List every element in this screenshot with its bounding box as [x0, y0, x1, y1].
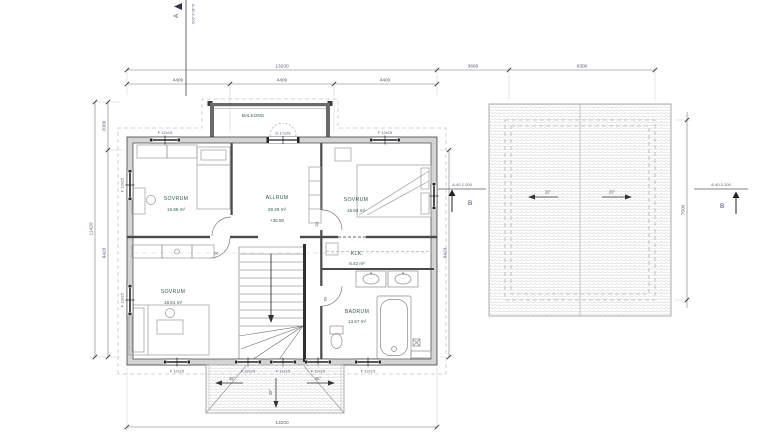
room-closet-area: 6.42 m² [349, 261, 365, 266]
room-bathroom-area: 13.57 m² [348, 319, 367, 324]
cad-floorplan-drawing: A A-40.2-200 13200 4400 4400 4400 3660 6… [0, 0, 768, 444]
room-bedroom-nw-area: 15.88 m² [167, 207, 186, 212]
roof-slope-right: 20° [609, 190, 616, 195]
section-arrow-up-left-icon [449, 190, 456, 197]
bed-bedroom-sw [129, 305, 209, 355]
porch-slope-center: 20° [268, 389, 273, 396]
window-left-upper [126, 170, 135, 200]
dim-top-total: 13200 [275, 64, 289, 70]
dimensions-right: 9420 [440, 148, 453, 359]
section-label-b-right: B [720, 203, 724, 210]
room-bathroom-name: BADRUM [345, 309, 369, 315]
cabinet-bedroom-ne [335, 148, 351, 161]
section-ref-top: A-40.2-200 [191, 4, 196, 25]
dimensions-roof-right: 7500 [675, 112, 691, 308]
label-window-bottom-2: F 12x15 [241, 369, 256, 374]
window-right [430, 183, 439, 209]
sink-right [388, 271, 418, 287]
door-swing-bedroom-nw [212, 217, 231, 236]
exterior-walls [127, 137, 437, 365]
label-window-top-left: F 12x15 [158, 130, 173, 135]
dim-seg1: 4400 [173, 78, 184, 84]
dim-gap-to-roof: 3660 [468, 64, 479, 70]
room-bedroom-ne-area: 15.84 m² [347, 208, 366, 213]
bathtub [377, 296, 411, 359]
dim-roof-depth: 7500 [681, 204, 687, 215]
balcony: BALKONG [208, 101, 333, 137]
porch-slope-left: 45° [229, 376, 236, 381]
section-arrow-icon [174, 3, 182, 10]
section-ref-right: A-40.2-200 [711, 182, 732, 187]
section-marker-right: A-40.2-200 B [694, 182, 748, 214]
section-ref-left: A-40.2-200 [452, 182, 473, 187]
label-window-bottom-1: F 12x15 [170, 369, 185, 374]
label-window-bottom-3: F 12x15 [276, 369, 291, 374]
wardrobes-bedroom-nw [137, 145, 197, 158]
interior-walls [127, 143, 437, 359]
dim-seg2: 4400 [277, 78, 288, 84]
balcony-door [267, 136, 300, 144]
dim-bottom-total: 13200 [275, 420, 289, 426]
door-swing-bedroom-ne [322, 210, 342, 230]
label-door-d8-c: D8 [324, 297, 328, 302]
toilet [330, 326, 343, 349]
windows [126, 136, 439, 367]
dim-left-upper: 2000 [102, 120, 108, 131]
room-bedroom-nw-name: SOVRUM [164, 196, 189, 202]
section-arrow-up-right-icon [733, 192, 740, 199]
room-bedroom-sw-area: 18.81 m² [164, 300, 183, 305]
shelf-livingroom [309, 167, 321, 223]
drawing-svg: A A-40.2-200 13200 4400 4400 4400 3660 6… [0, 0, 768, 444]
door-swing-bathroom [322, 286, 342, 306]
window-top-left [150, 136, 180, 145]
dim-seg3: 4400 [380, 78, 391, 84]
label-balcony-door: D 17x25 [276, 131, 292, 136]
label-window-top-right: F 12x15 [378, 130, 393, 135]
floor-drain-icon [413, 339, 420, 346]
label-window-bottom-4: F 12x15 [311, 369, 326, 374]
porch-slope-right: 45° [315, 376, 322, 381]
dim-right-side: 9420 [443, 247, 449, 258]
room-livingroom-area: 29.29 m² [268, 207, 287, 212]
sink-left [356, 271, 386, 287]
stair-arrow-head-icon [268, 315, 274, 323]
window-bottom-5 [355, 358, 381, 367]
roof-plan: 20° 20° [489, 104, 671, 316]
roof-slope-left: 20° [545, 190, 552, 195]
room-labels: SOVRUM 15.88 m² ALLRUM 29.29 m² +30.50 S… [161, 195, 369, 324]
window-bottom-1 [164, 358, 190, 367]
label-window-bottom-5: F 12x15 [361, 369, 376, 374]
label-door-d8-a: D8 [214, 252, 219, 256]
dim-left-total: 11420 [89, 222, 95, 235]
section-label-a: A [173, 13, 180, 18]
bathroom-fixtures [330, 271, 431, 359]
dim-roof-width: 6300 [577, 64, 588, 70]
label-door-d8-b: D8 [315, 222, 319, 227]
window-left-lower [126, 285, 135, 315]
staircase [239, 244, 306, 362]
bath-bench [411, 351, 431, 358]
room-livingroom-name: ALLRUM [266, 195, 289, 201]
window-top-right [370, 136, 400, 145]
balcony-label: BALKONG [242, 113, 265, 118]
bed-bedroom-ne [357, 165, 431, 217]
section-marker-left: A-40.2-200 B [438, 182, 486, 212]
label-window-left-upper: F 13x15 [120, 177, 125, 192]
dimensions-left: 11420 2000 9420 [89, 100, 125, 359]
room-livingroom-level: +30.50 [270, 218, 285, 223]
room-bedroom-ne-name: SOVRUM [344, 197, 369, 203]
desk-bedroom-sw [157, 309, 183, 335]
dim-left-lower: 9420 [102, 247, 108, 258]
section-label-b-left: B [468, 200, 472, 207]
room-closet-name: KLK. [351, 251, 363, 257]
bed-bedroom-nw [197, 147, 230, 209]
furniture [129, 145, 431, 355]
room-bedroom-sw-name: SOVRUM [161, 289, 186, 295]
label-window-left-lower: F 13x15 [120, 292, 125, 307]
desk-bedroom-nw [132, 188, 156, 214]
wardrobes-bedroom-sw [132, 245, 214, 258]
